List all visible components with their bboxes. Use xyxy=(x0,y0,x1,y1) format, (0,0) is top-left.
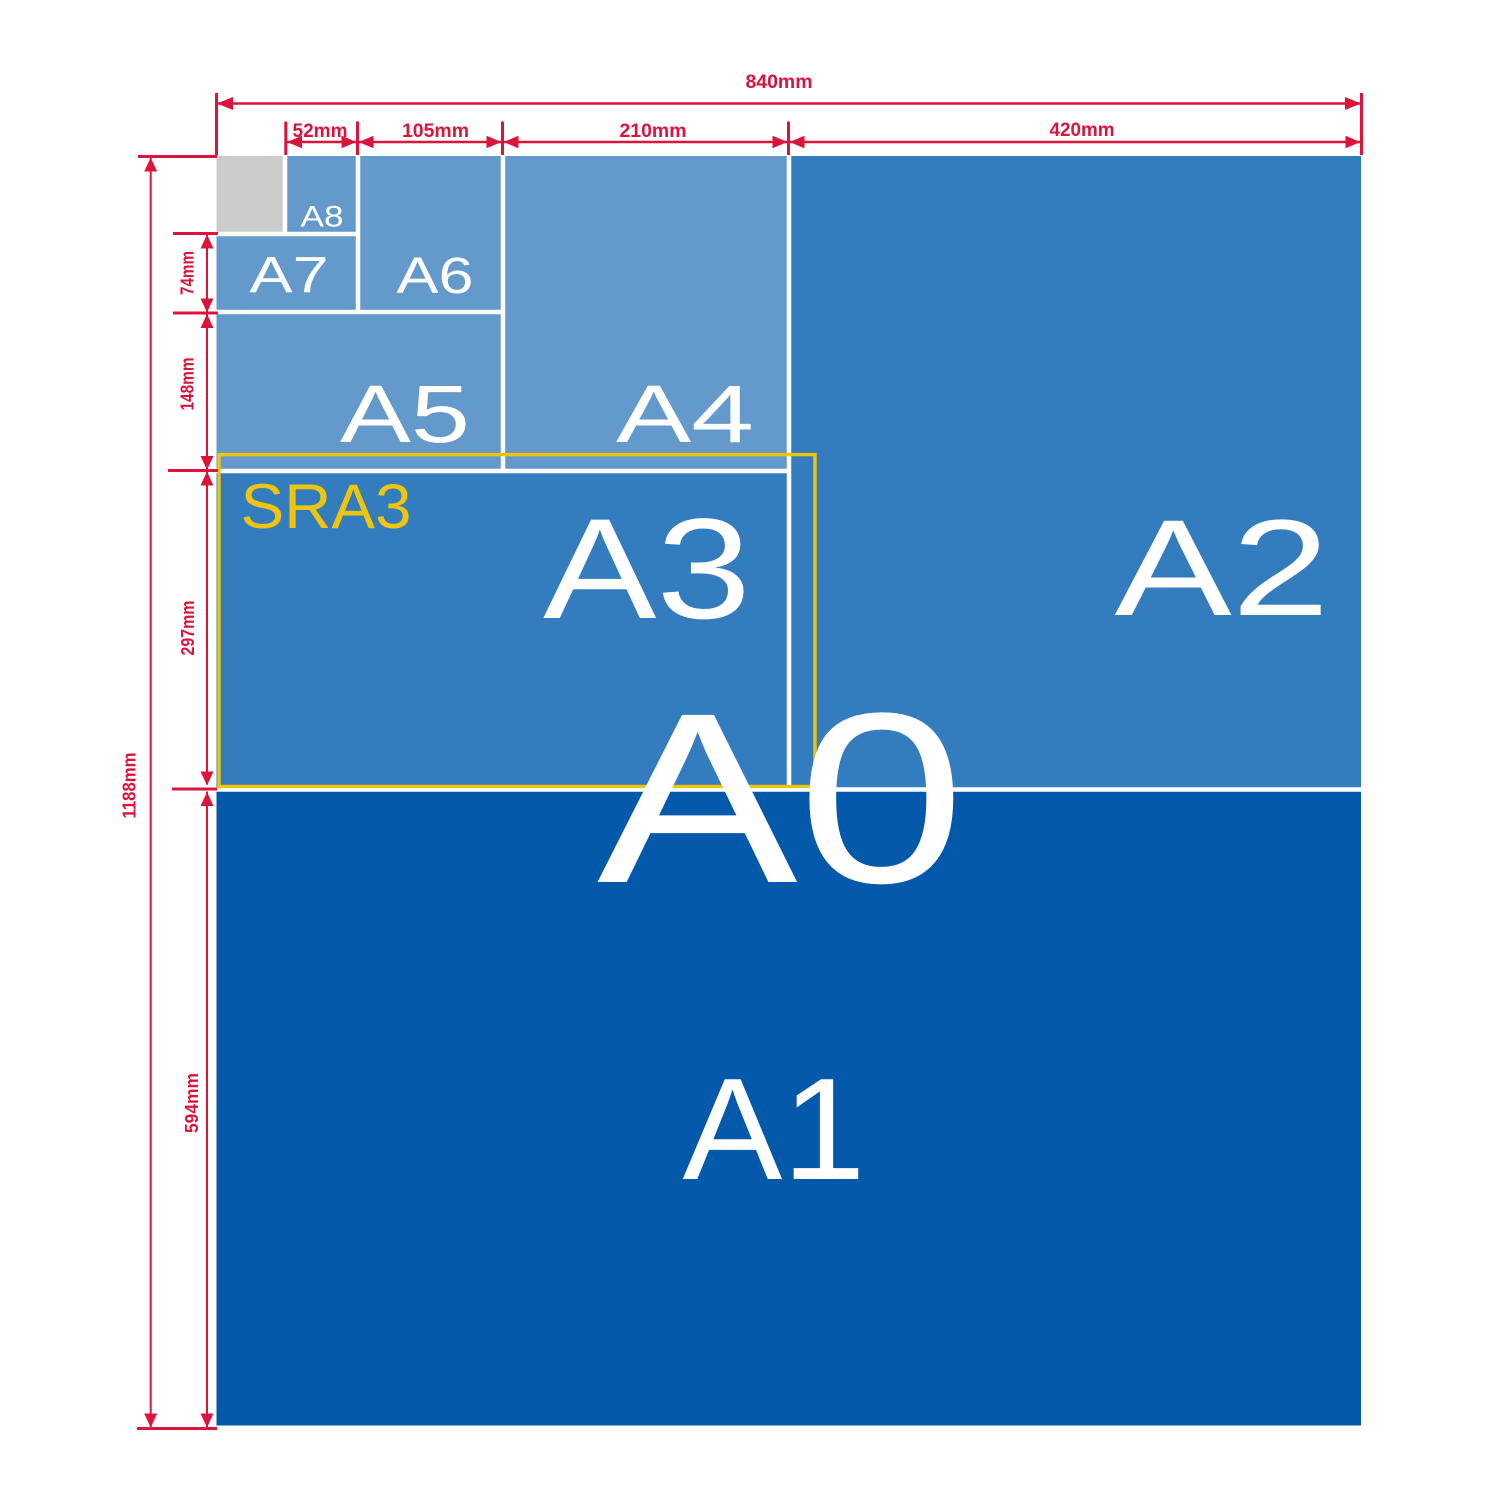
svg-text:A3: A3 xyxy=(543,490,751,649)
svg-text:A1: A1 xyxy=(683,1048,866,1210)
svg-text:A0: A0 xyxy=(597,663,965,934)
svg-text:594mm: 594mm xyxy=(182,1073,202,1133)
svg-text:A2: A2 xyxy=(1115,492,1330,645)
svg-text:105mm: 105mm xyxy=(402,121,469,142)
svg-text:1188mm: 1188mm xyxy=(120,753,140,819)
svg-text:A4: A4 xyxy=(616,369,754,460)
svg-text:A7: A7 xyxy=(250,247,329,304)
svg-text:74mm: 74mm xyxy=(178,251,198,295)
svg-text:SRA3: SRA3 xyxy=(241,472,412,542)
svg-text:A5: A5 xyxy=(340,369,470,460)
svg-text:148mm: 148mm xyxy=(178,358,198,411)
svg-text:A6: A6 xyxy=(397,247,474,304)
svg-text:840mm: 840mm xyxy=(746,72,813,93)
svg-text:210mm: 210mm xyxy=(620,121,687,142)
svg-text:297mm: 297mm xyxy=(178,601,198,656)
svg-text:52mm: 52mm xyxy=(293,121,348,142)
svg-text:420mm: 420mm xyxy=(1050,120,1115,141)
svg-text:A8: A8 xyxy=(301,201,344,234)
